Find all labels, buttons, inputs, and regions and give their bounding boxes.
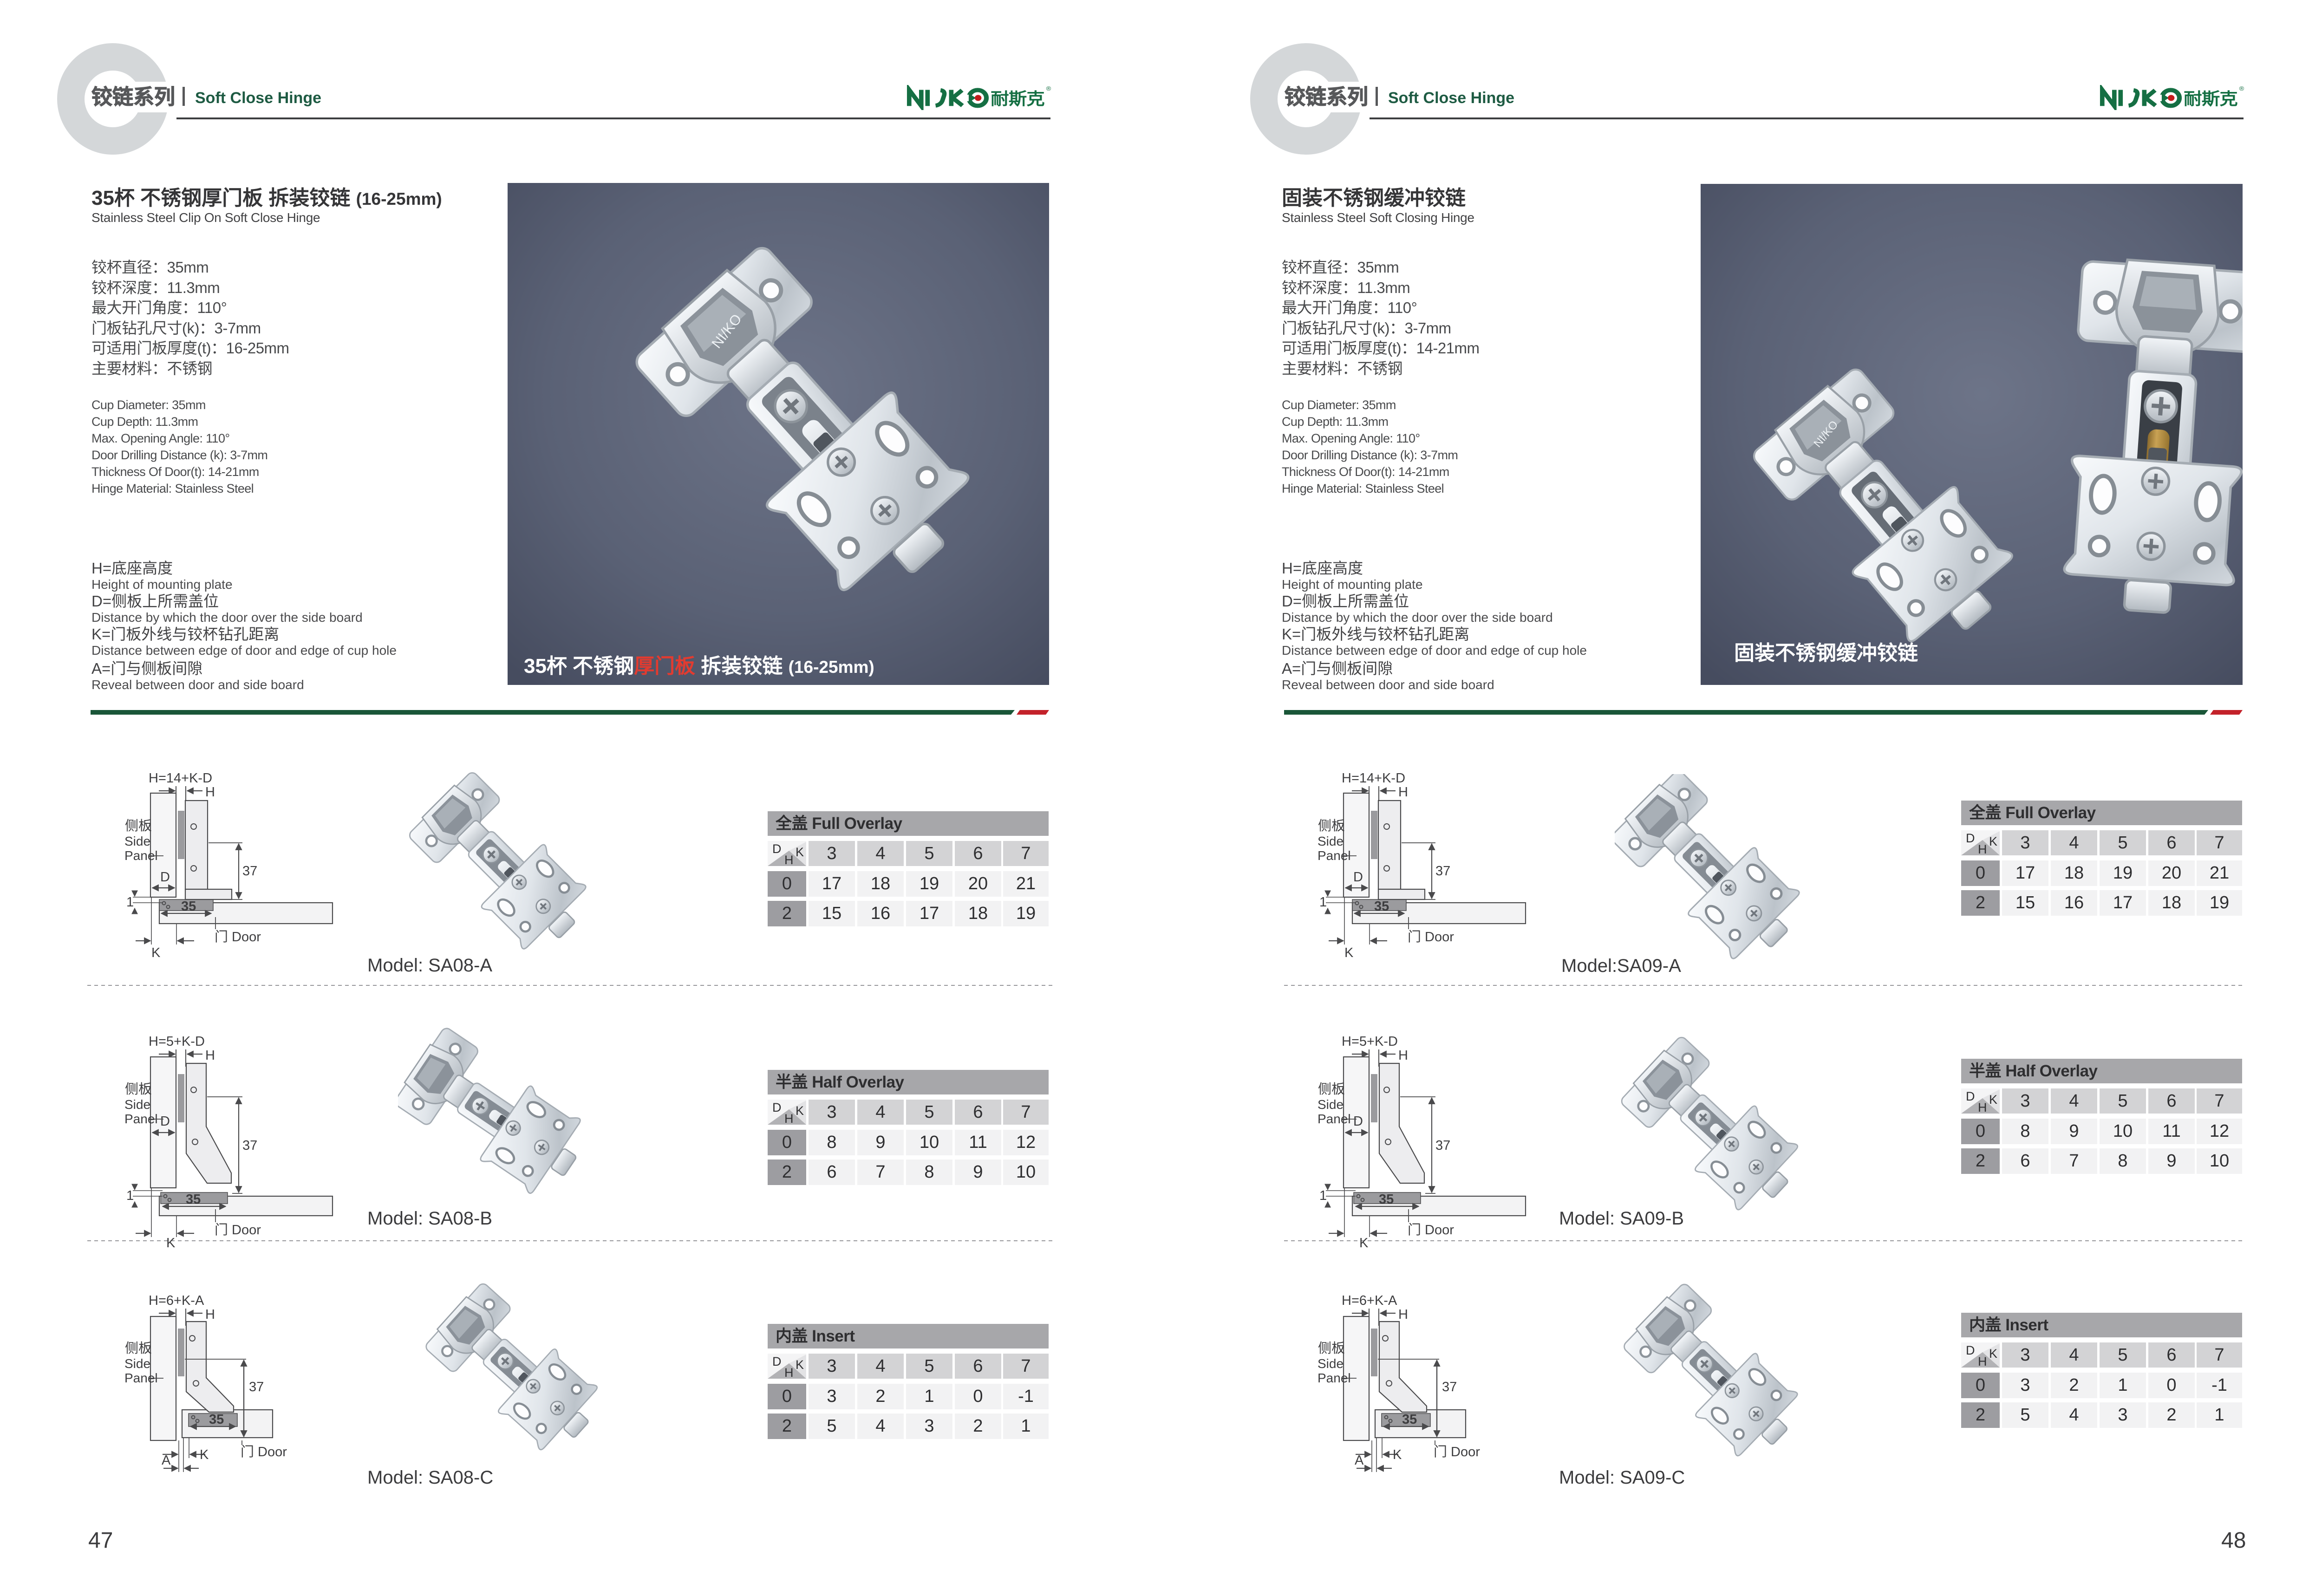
svg-text:1: 1 <box>126 895 134 910</box>
svg-text:35: 35 <box>1374 899 1389 914</box>
svg-text:37: 37 <box>242 1138 257 1153</box>
svg-text:H=6+K-A: H=6+K-A <box>1342 1293 1397 1308</box>
svg-text:37: 37 <box>242 864 257 879</box>
svg-text:侧板: 侧板 <box>1318 1081 1345 1097</box>
svg-text:侧板: 侧板 <box>1318 1341 1345 1356</box>
svg-text:35: 35 <box>186 1192 201 1207</box>
svg-text:37: 37 <box>1435 1138 1450 1153</box>
svg-text:D: D <box>1353 870 1363 885</box>
svg-text:Side: Side <box>124 1097 150 1112</box>
svg-text:K: K <box>166 1236 176 1251</box>
svg-text:侧板: 侧板 <box>125 1081 152 1097</box>
svg-text:1: 1 <box>1319 1188 1327 1203</box>
svg-text:门 Door: 门 Door <box>241 1444 287 1459</box>
svg-text:Side: Side <box>1318 1356 1344 1371</box>
svg-text:®: ® <box>2239 85 2244 92</box>
svg-text:35: 35 <box>1379 1192 1394 1207</box>
svg-text:1: 1 <box>126 1188 134 1203</box>
svg-text:侧板: 侧板 <box>1318 818 1345 834</box>
svg-text:D: D <box>160 870 170 885</box>
svg-text:A: A <box>1355 1453 1364 1468</box>
svg-text:H=14+K-D: H=14+K-D <box>1342 771 1405 786</box>
svg-text:K: K <box>1344 945 1354 960</box>
svg-text:H: H <box>205 1307 215 1322</box>
svg-text:H: H <box>205 1048 215 1063</box>
svg-text:H=5+K-D: H=5+K-D <box>1342 1034 1398 1049</box>
svg-text:37: 37 <box>1442 1380 1457 1394</box>
svg-text:门 Door: 门 Door <box>1408 929 1454 945</box>
svg-text:35: 35 <box>1402 1412 1417 1427</box>
svg-text:H: H <box>205 785 215 800</box>
svg-text:耐斯克: 耐斯克 <box>991 90 1044 108</box>
svg-text:Side: Side <box>1318 834 1344 848</box>
svg-text:K: K <box>1393 1447 1402 1462</box>
svg-text:侧板: 侧板 <box>125 818 152 834</box>
svg-text:Side: Side <box>124 1356 150 1371</box>
svg-text:侧板: 侧板 <box>125 1341 152 1356</box>
svg-text:耐斯克: 耐斯克 <box>2184 90 2237 108</box>
svg-text:门 Door: 门 Door <box>1408 1222 1454 1238</box>
svg-text:®: ® <box>1046 85 1051 92</box>
svg-text:H=5+K-D: H=5+K-D <box>149 1034 205 1049</box>
svg-text:Side: Side <box>124 834 150 848</box>
svg-text:门 Door: 门 Door <box>215 929 261 945</box>
svg-text:35: 35 <box>181 899 196 914</box>
svg-text:37: 37 <box>249 1380 264 1394</box>
svg-text:1: 1 <box>1319 895 1327 910</box>
svg-text:K: K <box>200 1447 209 1462</box>
svg-text:门 Door: 门 Door <box>215 1222 261 1238</box>
svg-text:K: K <box>151 945 161 960</box>
svg-text:A: A <box>162 1453 171 1468</box>
svg-text:D: D <box>1353 1114 1363 1129</box>
svg-text:Side: Side <box>1318 1097 1344 1112</box>
svg-text:35: 35 <box>209 1412 224 1427</box>
svg-text:37: 37 <box>1435 864 1450 879</box>
svg-text:H: H <box>1398 1307 1408 1322</box>
svg-text:H=14+K-D: H=14+K-D <box>149 771 212 786</box>
svg-text:D: D <box>160 1114 170 1129</box>
svg-text:H: H <box>1398 785 1408 800</box>
svg-text:门 Door: 门 Door <box>1434 1444 1480 1459</box>
svg-text:H: H <box>1398 1048 1408 1063</box>
svg-text:K: K <box>1359 1236 1369 1251</box>
svg-text:H=6+K-A: H=6+K-A <box>149 1293 204 1308</box>
